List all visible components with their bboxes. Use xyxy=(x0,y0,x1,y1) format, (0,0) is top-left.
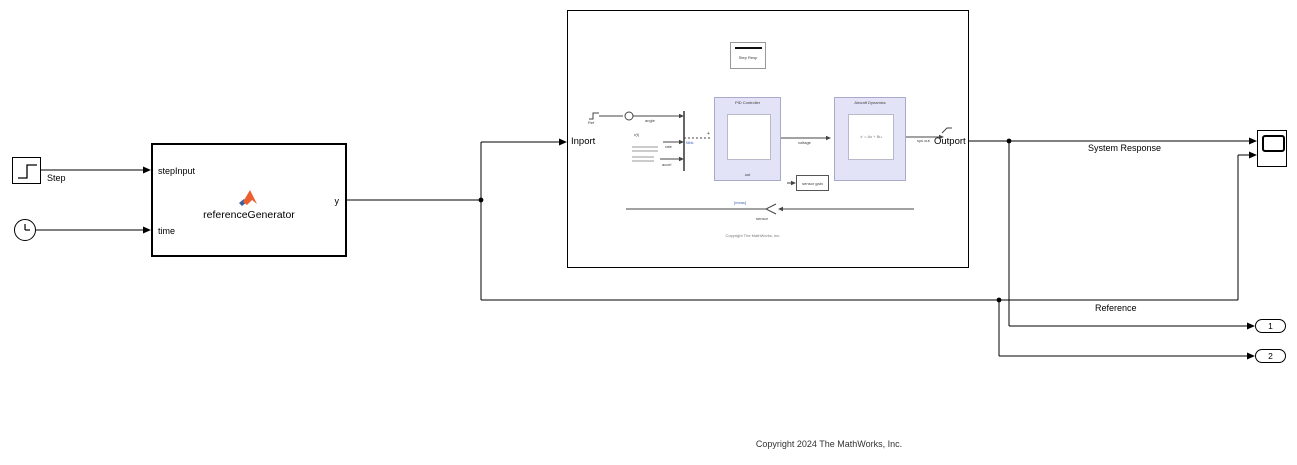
port-label-stepinput: stepInput xyxy=(158,166,195,176)
preview-feedback-tag: [meas] xyxy=(734,200,746,205)
copyright-annotation: Copyright 2024 The MathWorks, Inc. xyxy=(574,439,1084,449)
outport-1-label: 1 xyxy=(1268,321,1273,331)
signal-label-system-response: System Response xyxy=(1088,143,1161,153)
outport-2-label: 2 xyxy=(1268,351,1273,361)
step-block[interactable] xyxy=(12,157,41,184)
preview-signal-accel: accel xyxy=(662,162,671,167)
matlab-logo-icon xyxy=(239,189,259,207)
preview-signal-r: r(t) xyxy=(634,132,639,137)
preview-wiring xyxy=(568,11,970,269)
preview-out-label: sys out xyxy=(917,138,930,143)
reference-generator-title: referenceGenerator xyxy=(153,209,345,221)
preview-feedback-label: sensor xyxy=(756,216,768,221)
preview-signal-angle: angle xyxy=(645,118,655,123)
wire-system-response[interactable] xyxy=(969,141,1250,326)
step-block-label: Step xyxy=(47,173,66,183)
port-label-time: time xyxy=(158,226,175,236)
clock-block[interactable] xyxy=(14,219,36,241)
scope-screen-icon xyxy=(1262,135,1285,152)
preview-bus-tag: fdbk xyxy=(686,140,694,145)
port-label-y: y xyxy=(335,196,340,206)
clock-icon xyxy=(15,220,35,240)
step-signal-icon xyxy=(13,158,42,185)
simulink-model-canvas: Step stepInput time y referenceGenerator… xyxy=(0,0,1297,465)
preview-plus-sign: + xyxy=(707,132,710,137)
reference-generator-block[interactable]: stepInput time y referenceGenerator xyxy=(151,143,347,257)
preview-source-label: Ref xyxy=(588,120,594,125)
preview-signal-voltage: voltage xyxy=(798,140,811,145)
wire-refgen-output[interactable] xyxy=(347,142,560,300)
outport-1-block[interactable]: 1 xyxy=(1255,319,1286,333)
controller-subsystem-block[interactable]: Inport Outport Step Resp PID Controller … xyxy=(567,10,969,268)
signal-label-reference: Reference xyxy=(1095,303,1137,313)
preview-signal-rate: rate xyxy=(665,144,672,149)
scope-block[interactable] xyxy=(1257,130,1287,167)
preview-annotation: Copyright The MathWorks, Inc. xyxy=(698,233,808,238)
outport-2-block[interactable]: 2 xyxy=(1255,349,1286,363)
